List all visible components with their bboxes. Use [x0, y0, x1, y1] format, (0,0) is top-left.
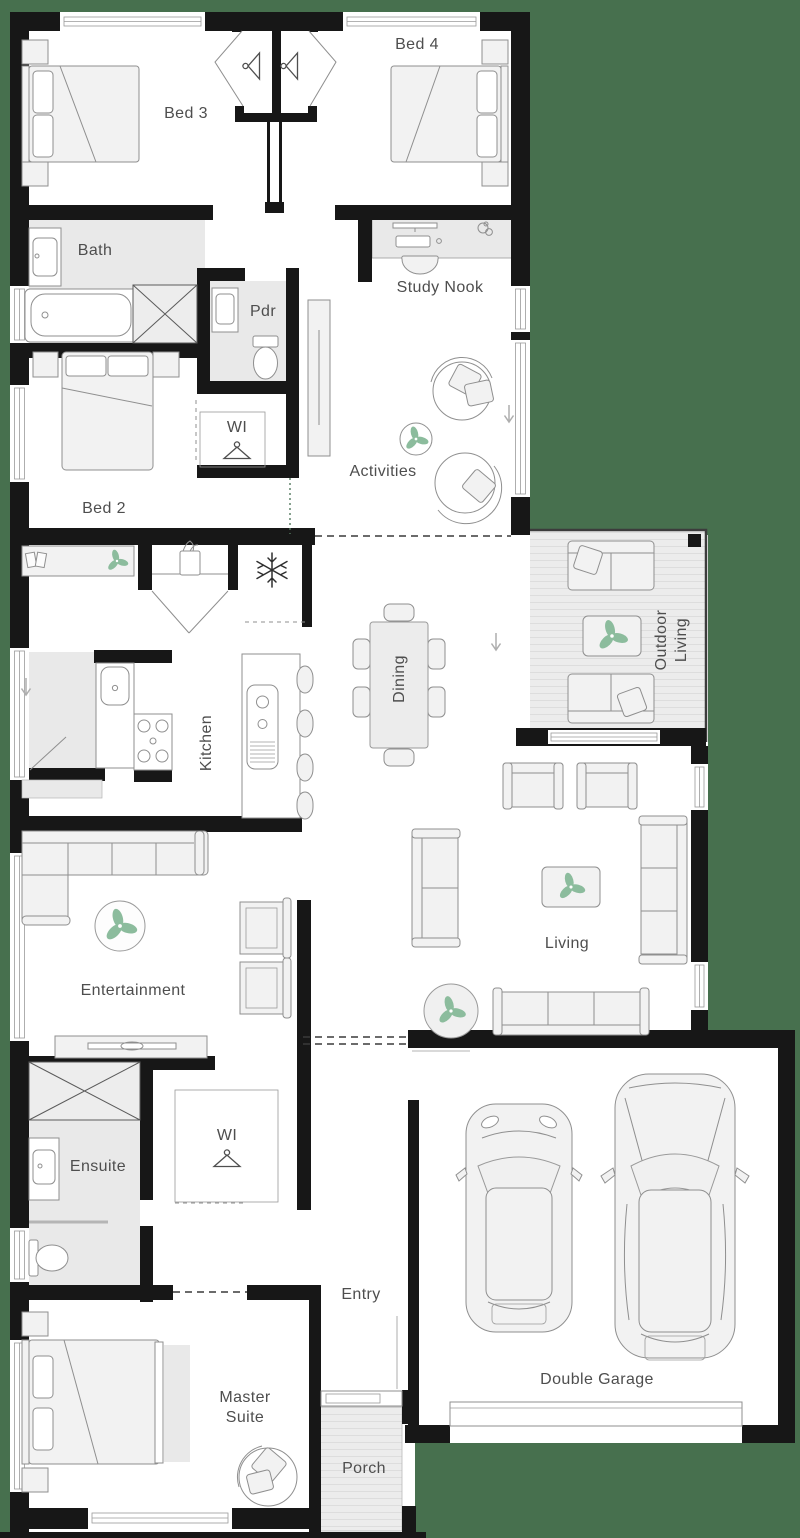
room-label-wi-upper: WI — [227, 418, 247, 438]
garage-door — [450, 1402, 742, 1426]
window — [10, 385, 29, 482]
sofa-two-seat — [412, 829, 460, 947]
room-label-bed2: Bed 2 — [82, 499, 126, 519]
room-label-bed3: Bed 3 — [164, 104, 208, 124]
armchair — [503, 763, 563, 809]
room-label-dining: Dining — [390, 655, 410, 703]
sofa-three-seat — [493, 988, 649, 1035]
floorplan-canvas: Bed 3 Bed 4 Bath Pdr Study Nook WI Bed 2… — [0, 0, 800, 1538]
room-label-kitchen: Kitchen — [197, 715, 217, 771]
room-label-outdoor-living: Outdoor Living — [652, 601, 692, 679]
toilet — [253, 336, 278, 379]
outdoor-sofa — [568, 674, 654, 723]
sliding-door — [511, 340, 530, 497]
stool — [297, 792, 313, 819]
room-label-bath: Bath — [78, 241, 113, 261]
window — [60, 12, 205, 31]
room-label-activities: Activities — [349, 462, 416, 482]
room-label-wi-lower: WI — [217, 1126, 237, 1146]
room-label-pdr: Pdr — [250, 302, 276, 322]
plant-pot — [400, 423, 432, 455]
window — [10, 648, 29, 780]
stool — [297, 666, 313, 693]
window — [691, 962, 708, 1010]
room-label-double-garage: Double Garage — [540, 1370, 654, 1390]
shower — [29, 1062, 140, 1120]
front-door — [321, 1391, 402, 1406]
rug — [164, 1345, 190, 1462]
outdoor-coffee-table — [583, 616, 641, 656]
pantry-floor — [29, 652, 98, 768]
armchair — [240, 898, 291, 958]
stool — [297, 754, 313, 781]
window — [691, 764, 708, 810]
car-large — [601, 1074, 749, 1360]
room-label-ensuite: Ensuite — [70, 1157, 126, 1177]
room-label-entry: Entry — [341, 1285, 380, 1305]
car-small — [456, 1104, 582, 1332]
room-label-living: Living — [545, 934, 589, 954]
room-label-master-suite: Master Suite — [208, 1388, 282, 1428]
room-label-porch: Porch — [342, 1459, 386, 1479]
island-bench — [242, 654, 313, 819]
stool — [297, 710, 313, 737]
window — [343, 12, 480, 31]
room-label-bed4: Bed 4 — [395, 35, 439, 55]
shower — [133, 285, 197, 343]
coffee-table — [542, 867, 600, 907]
rug-plant — [95, 901, 145, 951]
floorplan-drawing — [0, 0, 800, 1538]
armchair — [240, 958, 291, 1018]
deck-post — [688, 534, 701, 547]
window — [88, 1508, 232, 1529]
window — [10, 1228, 29, 1282]
tv-unit — [55, 1036, 207, 1058]
outdoor-sofa — [568, 541, 654, 590]
window — [511, 286, 530, 332]
armchair — [577, 763, 637, 809]
room-label-study-nook: Study Nook — [397, 278, 484, 298]
cooktop — [134, 714, 172, 770]
window — [548, 730, 660, 744]
round-rug — [424, 984, 478, 1038]
room-label-entertainment: Entertainment — [81, 981, 186, 1001]
hall-console — [22, 546, 134, 576]
sofa-three-seat — [639, 816, 687, 964]
